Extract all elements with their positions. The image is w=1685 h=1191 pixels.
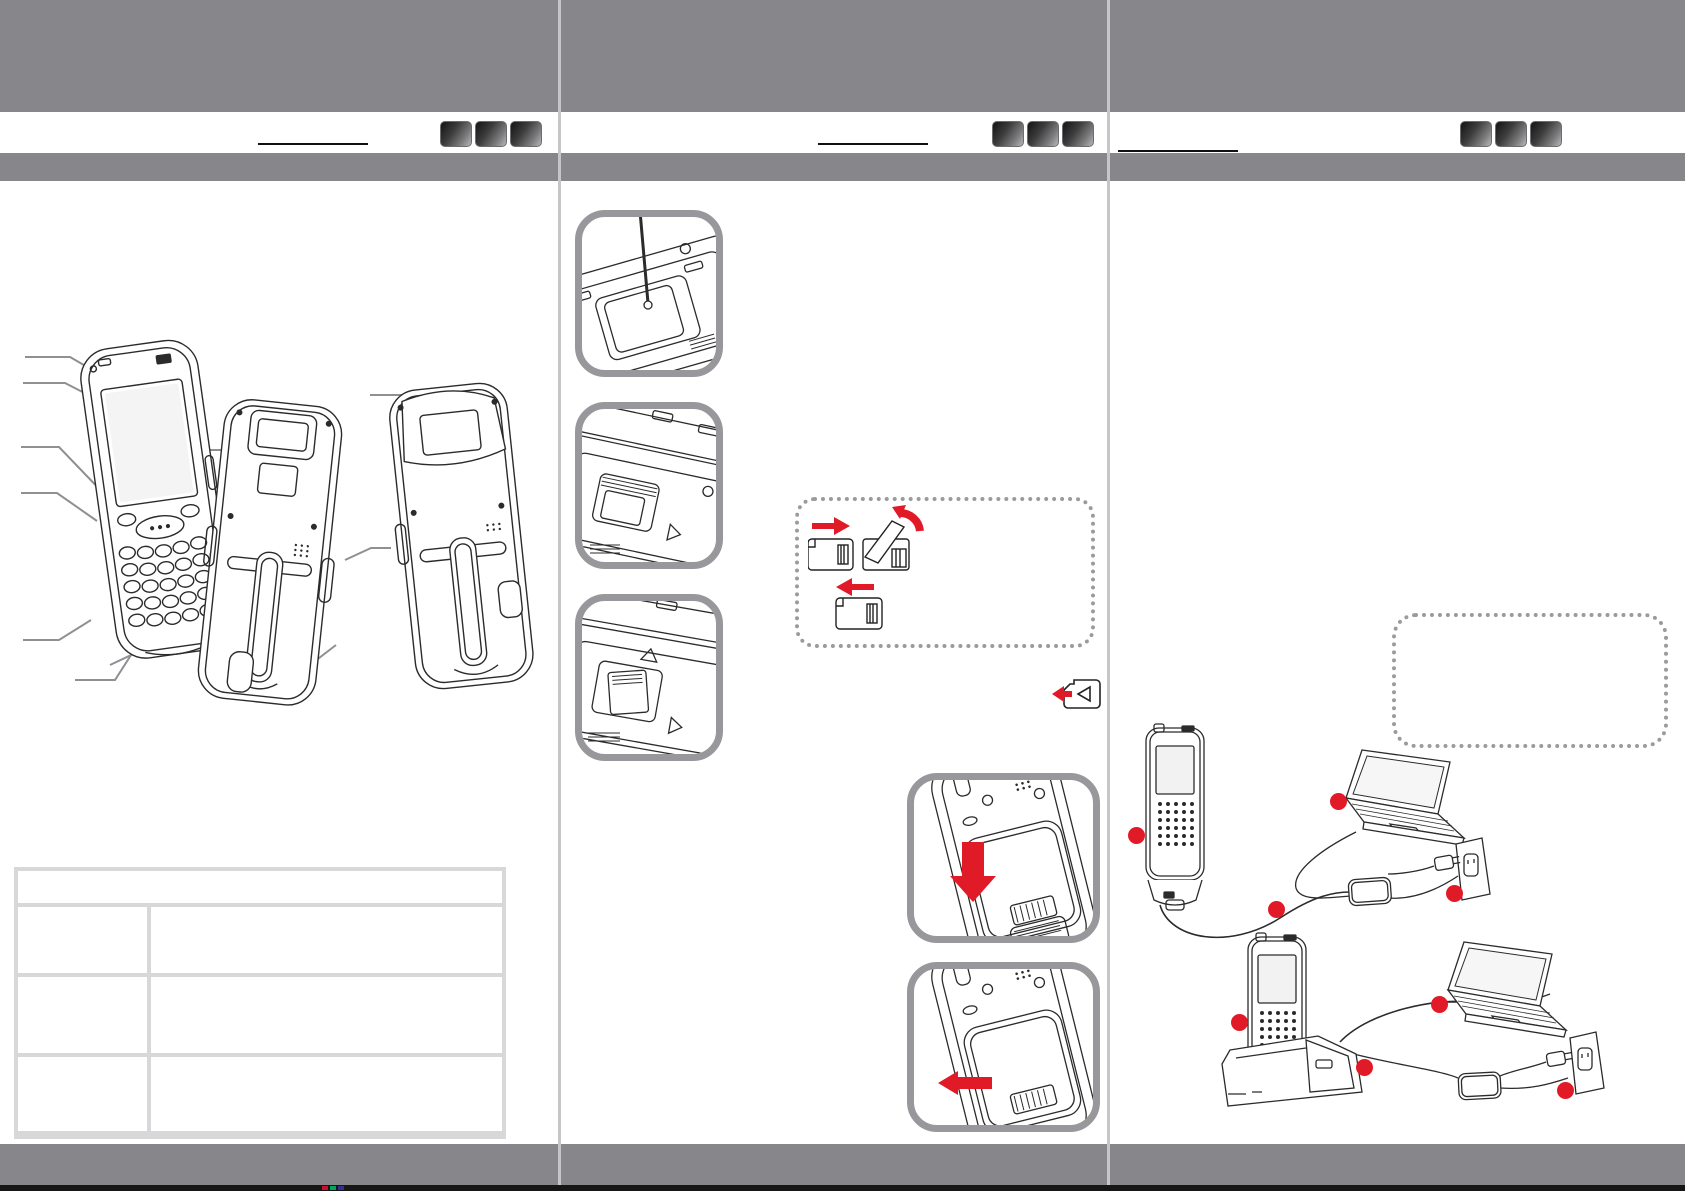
- arrow-right-icon: [812, 517, 850, 535]
- spec-table-r2c1: [18, 977, 147, 1053]
- registration-mark-blue: [338, 1186, 344, 1190]
- bottom-edge: [0, 1185, 1685, 1191]
- arrow-left-icon: [836, 578, 874, 596]
- step-marker-2: [1330, 793, 1347, 810]
- step-marker-3: [1268, 901, 1285, 918]
- right-nav-square-1: [1460, 121, 1492, 147]
- step-marker-1: [1128, 827, 1145, 844]
- spec-table-r1c2: [151, 907, 502, 973]
- spec-table-r1c1: [18, 907, 147, 973]
- registration-mark-red: [322, 1186, 328, 1190]
- spec-table-r3c2: [151, 1057, 502, 1131]
- guide-page: [0, 0, 1685, 1191]
- step-image-insert-battery: [907, 773, 1100, 943]
- top-gray-band: [0, 0, 1685, 112]
- step-image-card-slot: [575, 402, 723, 569]
- panel-divider-1: [558, 0, 561, 1185]
- spec-table-header: [18, 871, 502, 903]
- registration-mark-green: [330, 1186, 336, 1190]
- middle-nav-square-3: [1062, 121, 1094, 147]
- step-image-open-compartment: [575, 210, 723, 377]
- spec-table-r3c1: [18, 1057, 147, 1131]
- step-marker-4: [1446, 885, 1463, 902]
- right-nav-square-3: [1530, 121, 1562, 147]
- card-eject-icon: [1050, 676, 1108, 712]
- right-panel-title-underline: [1118, 150, 1238, 152]
- left-panel-title-underline: [258, 143, 368, 145]
- spec-table-r2c2: [151, 977, 502, 1053]
- step-marker-8: [1557, 1082, 1574, 1099]
- step-image-battery-latch: [907, 962, 1100, 1132]
- step-marker-5: [1231, 1014, 1248, 1031]
- footer-gray-band: [0, 1144, 1685, 1185]
- section-title-bar: [0, 153, 1685, 181]
- spec-table: [14, 867, 506, 1139]
- terminal-views-figure: [15, 335, 535, 720]
- left-nav-square-2: [475, 121, 507, 147]
- step-image-card-inserted: [575, 594, 723, 761]
- left-nav-square-1: [440, 121, 472, 147]
- step-marker-7: [1356, 1059, 1373, 1076]
- right-nav-square-2: [1495, 121, 1527, 147]
- middle-nav-square-1: [992, 121, 1024, 147]
- left-nav-square-3: [510, 121, 542, 147]
- step-marker-6: [1431, 996, 1448, 1013]
- middle-panel-title-underline: [818, 143, 928, 145]
- card-flip-diagram: [808, 505, 928, 635]
- charging-setups-figure: [1110, 650, 1685, 1140]
- middle-nav-square-2: [1027, 121, 1059, 147]
